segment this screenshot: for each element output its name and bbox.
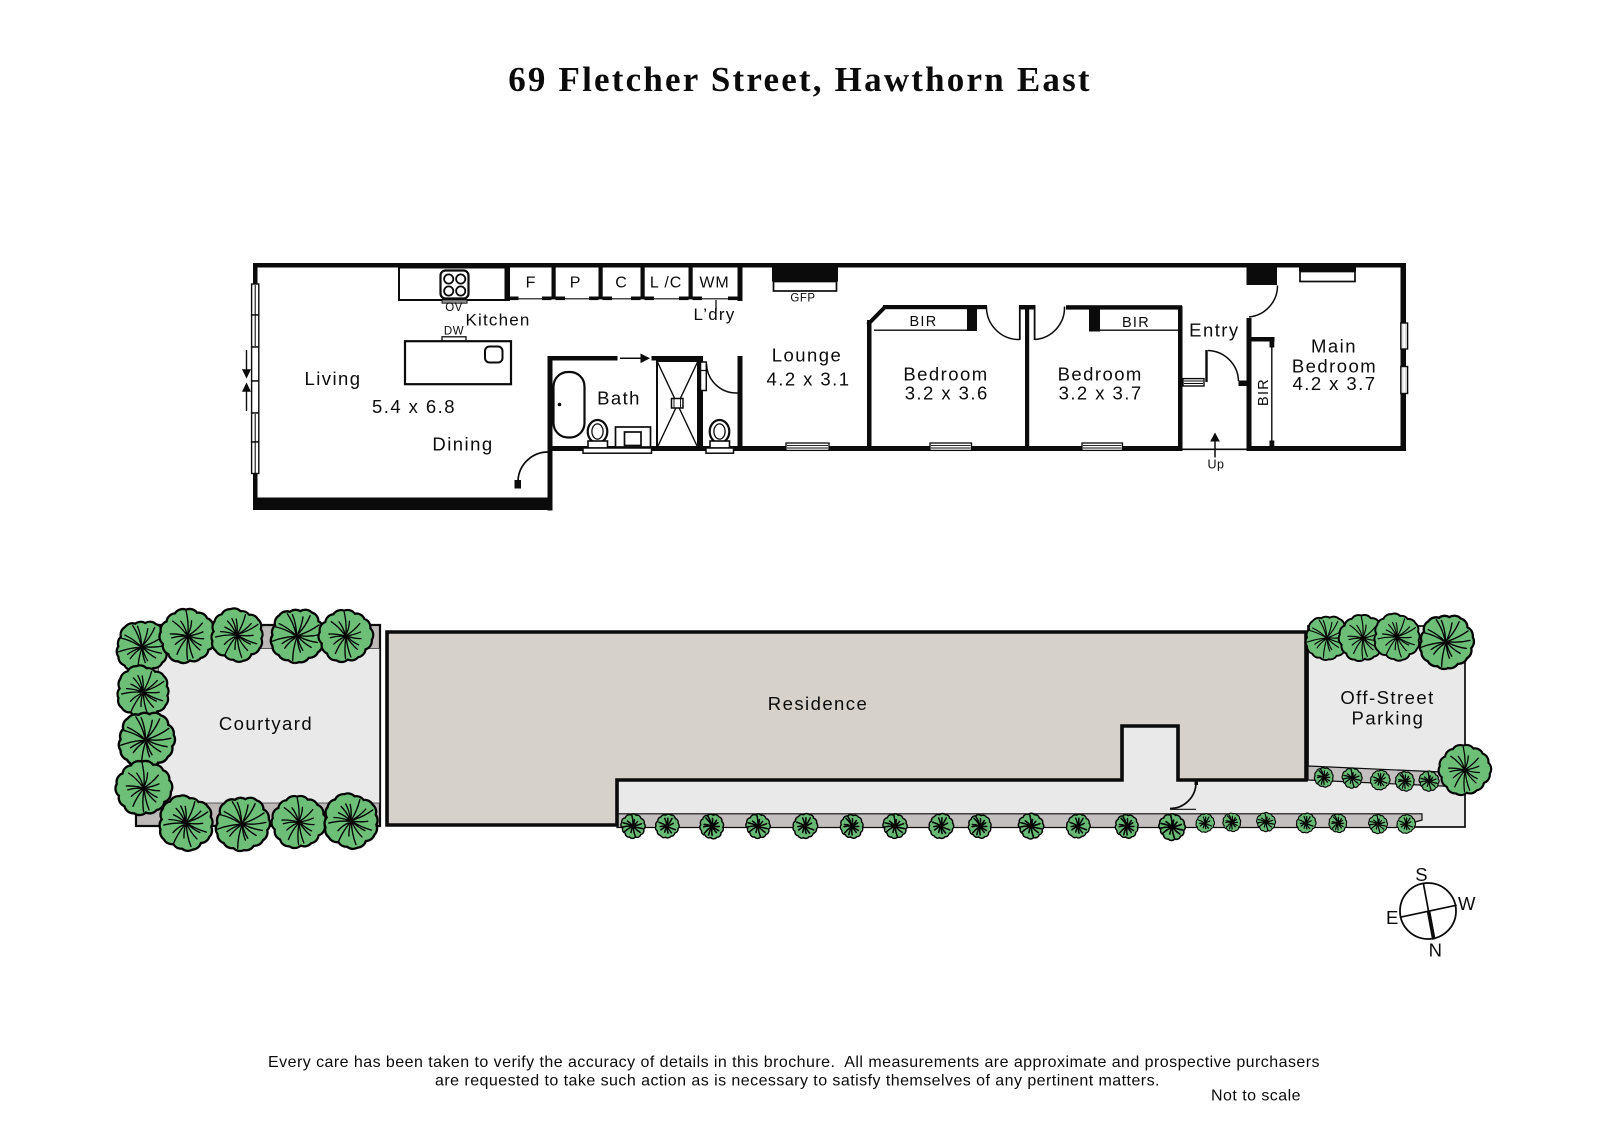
svg-text:Bath: Bath xyxy=(597,388,641,409)
svg-text:P: P xyxy=(570,275,582,292)
svg-text:BIR: BIR xyxy=(1256,378,1272,406)
svg-text:WM: WM xyxy=(699,275,729,292)
svg-text:E: E xyxy=(1386,907,1399,928)
svg-text:Dining: Dining xyxy=(432,434,493,455)
svg-text:F: F xyxy=(526,275,537,292)
svg-text:Not to scale: Not to scale xyxy=(1211,1088,1301,1105)
svg-text:4.2 x 3.7: 4.2 x 3.7 xyxy=(1292,373,1376,394)
svg-text:Entry: Entry xyxy=(1189,320,1239,341)
svg-text:Bedroom: Bedroom xyxy=(903,364,988,385)
svg-text:5.4 x 6.8: 5.4 x 6.8 xyxy=(372,396,456,417)
svg-text:Residence: Residence xyxy=(768,693,868,714)
svg-text:Living: Living xyxy=(304,368,361,389)
svg-text:Lounge: Lounge xyxy=(772,345,842,366)
svg-text:OV: OV xyxy=(445,302,463,314)
svg-text:N: N xyxy=(1429,940,1443,961)
svg-text:Off-Street: Off-Street xyxy=(1340,687,1434,708)
svg-text:Every care has been taken to v: Every care has been taken to verify the … xyxy=(268,1054,1320,1071)
svg-text:4.2 x 3.1: 4.2 x 3.1 xyxy=(766,369,850,390)
svg-text:DW: DW xyxy=(444,326,464,338)
svg-text:L /C: L /C xyxy=(650,275,682,292)
svg-text:W: W xyxy=(1458,893,1476,914)
svg-text:Main: Main xyxy=(1311,335,1357,356)
svg-text:Kitchen: Kitchen xyxy=(465,311,530,330)
svg-text:C: C xyxy=(615,275,627,292)
svg-text:69 Fletcher Street, Hawthorn E: 69 Fletcher Street, Hawthorn East xyxy=(508,60,1092,99)
svg-text:are requested to take such act: are requested to take such action as is … xyxy=(435,1073,1160,1090)
svg-text:3.2 x 3.7: 3.2 x 3.7 xyxy=(1059,383,1143,404)
svg-text:S: S xyxy=(1415,864,1428,885)
svg-text:3.2 x 3.6: 3.2 x 3.6 xyxy=(905,383,989,404)
svg-text:Parking: Parking xyxy=(1352,708,1425,729)
svg-text:Up: Up xyxy=(1208,458,1225,472)
svg-text:BIR: BIR xyxy=(909,314,937,330)
svg-text:GFP: GFP xyxy=(790,293,815,305)
svg-text:L’dry: L’dry xyxy=(694,305,736,324)
svg-text:Bedroom: Bedroom xyxy=(1058,364,1143,385)
svg-text:Courtyard: Courtyard xyxy=(219,713,313,734)
svg-text:BIR: BIR xyxy=(1122,315,1150,331)
